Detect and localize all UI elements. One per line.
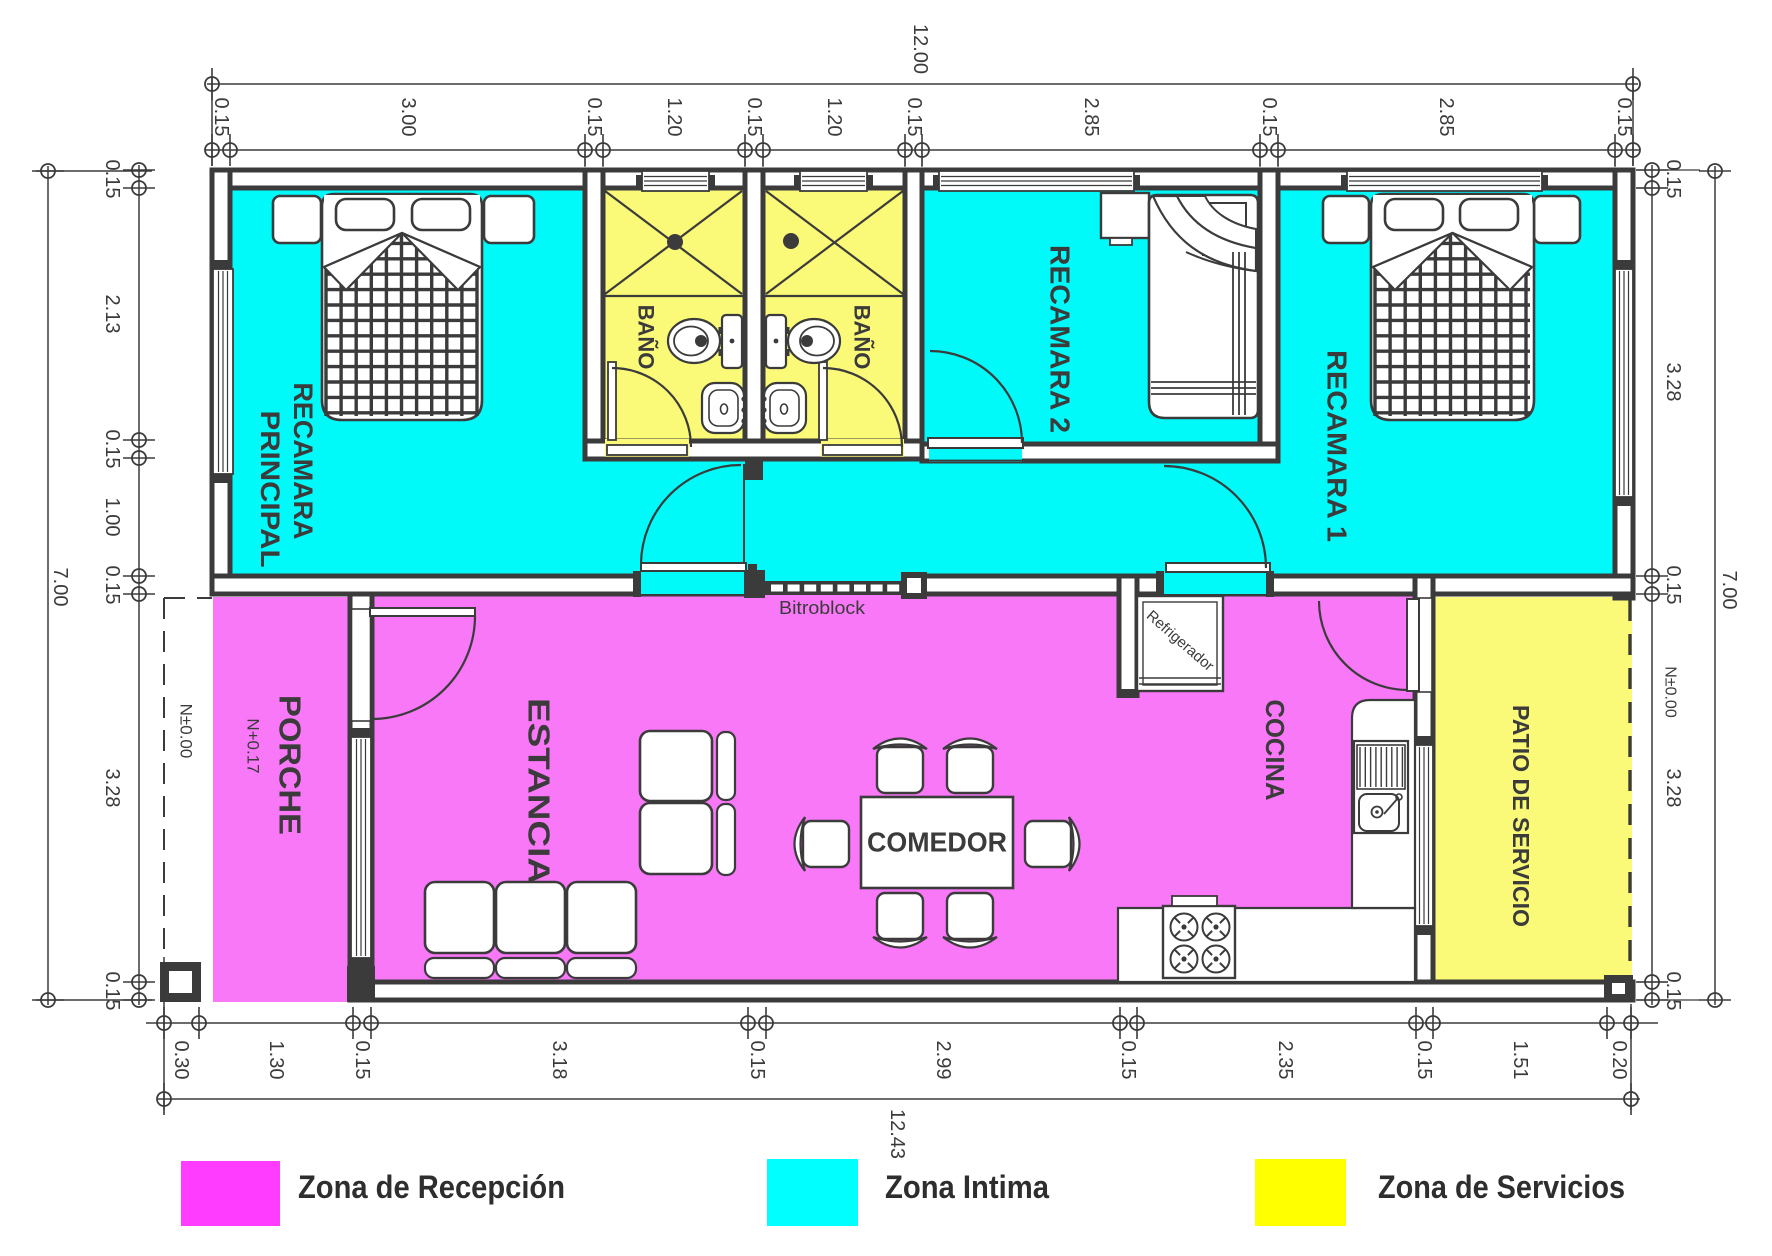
svg-text:N+0.17: N+0.17 [244,718,263,773]
svg-text:COMEDOR: COMEDOR [867,827,1007,858]
svg-text:BAÑO: BAÑO [850,305,875,370]
svg-text:0.15: 0.15 [351,1041,373,1080]
svg-text:7.00: 7.00 [49,568,71,607]
svg-text:1.00: 1.00 [101,498,123,537]
svg-text:Bitroblock: Bitroblock [779,598,866,618]
svg-text:PRINCIPAL: PRINCIPAL [255,411,285,568]
svg-text:0.15: 0.15 [101,972,123,1011]
svg-text:0.20: 0.20 [1608,1041,1630,1080]
svg-text:2.85: 2.85 [1435,98,1457,137]
svg-text:0.15: 0.15 [101,566,123,605]
svg-text:N±0.00: N±0.00 [1662,666,1679,718]
svg-text:3.18: 3.18 [548,1041,570,1080]
svg-text:N±0.00: N±0.00 [177,704,196,759]
svg-text:0.15: 0.15 [1258,98,1280,137]
svg-text:2.85: 2.85 [1080,98,1102,137]
svg-text:0.15: 0.15 [1662,972,1684,1011]
svg-text:2.13: 2.13 [101,295,123,334]
svg-text:Zona Intima: Zona Intima [885,1169,1049,1205]
svg-text:0.15: 0.15 [903,98,925,137]
svg-text:ESTANCIA: ESTANCIA [522,698,557,884]
svg-text:0.15: 0.15 [1413,1041,1435,1080]
svg-text:0.15: 0.15 [746,1041,768,1080]
svg-text:0.15: 0.15 [210,98,232,137]
svg-text:PATIO DE SERVICIO: PATIO DE SERVICIO [1508,705,1534,927]
svg-text:BAÑO: BAÑO [634,305,659,370]
svg-text:PORCHE: PORCHE [273,695,308,835]
svg-text:0.30: 0.30 [170,1041,192,1080]
svg-text:0.15: 0.15 [743,98,765,137]
svg-text:RECAMARA: RECAMARA [288,383,318,540]
svg-text:0.15: 0.15 [1662,160,1684,199]
svg-text:3.28: 3.28 [1662,363,1684,402]
svg-text:7.00: 7.00 [1718,571,1740,610]
svg-text:0.15: 0.15 [1613,98,1635,137]
svg-text:3.28: 3.28 [1662,769,1684,808]
svg-text:Zona de Recepción: Zona de Recepción [298,1169,565,1205]
svg-text:1.51: 1.51 [1509,1041,1531,1080]
svg-text:1.30: 1.30 [265,1041,287,1080]
svg-text:3.00: 3.00 [397,98,419,137]
svg-text:0.15: 0.15 [583,98,605,137]
svg-text:3.28: 3.28 [101,769,123,808]
svg-text:2.99: 2.99 [932,1041,954,1080]
svg-text:0.15: 0.15 [1662,566,1684,605]
svg-text:RECAMARA 2: RECAMARA 2 [1045,245,1076,433]
svg-text:12.43: 12.43 [886,1109,908,1159]
svg-text:RECAMARA 1: RECAMARA 1 [1322,350,1353,542]
svg-text:0.15: 0.15 [101,160,123,199]
svg-text:2.35: 2.35 [1274,1041,1296,1080]
svg-text:12.00: 12.00 [909,24,931,74]
svg-text:Zona de Servicios: Zona de Servicios [1378,1169,1625,1205]
svg-text:1.20: 1.20 [663,98,685,137]
svg-text:1.20: 1.20 [823,98,845,137]
svg-text:COCINA: COCINA [1260,700,1290,801]
svg-text:0.15: 0.15 [1117,1041,1139,1080]
svg-text:0.15: 0.15 [101,430,123,469]
